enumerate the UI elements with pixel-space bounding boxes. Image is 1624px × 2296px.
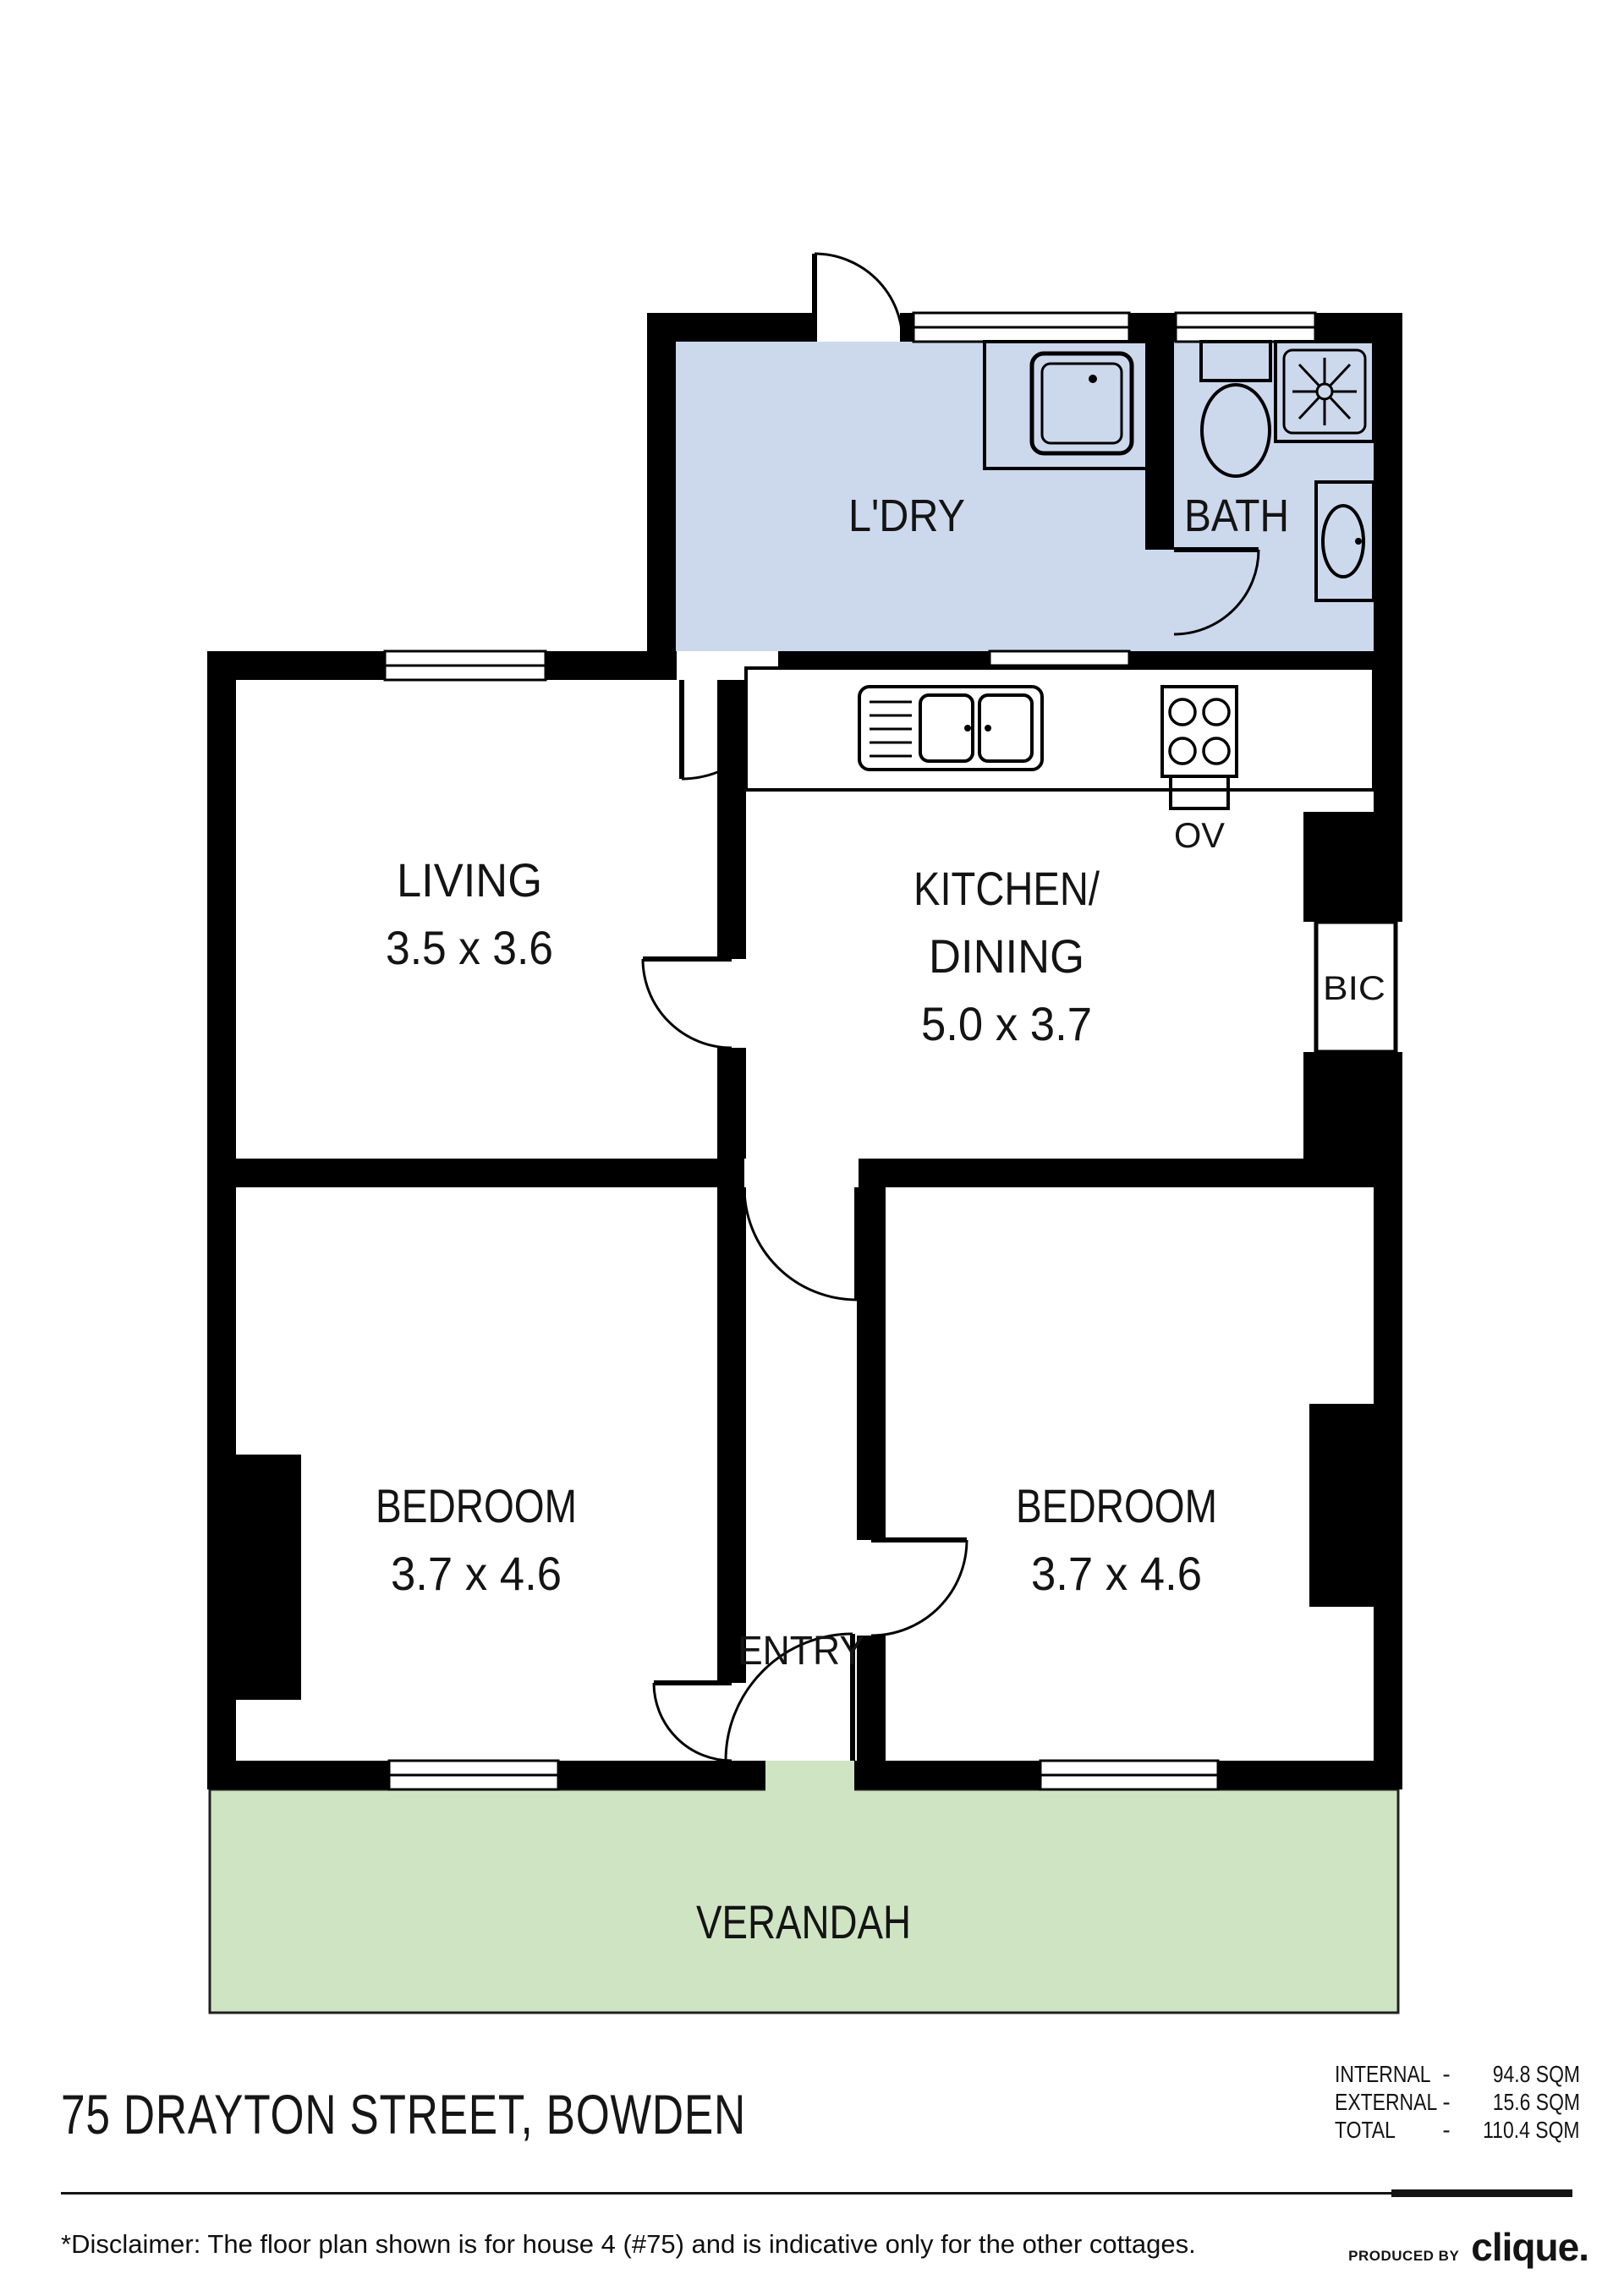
area-row-internal: INTERNAL - 94.8 SQM: [1335, 2060, 1580, 2088]
area-table: INTERNAL - 94.8 SQM EXTERNAL - 15.6 SQM …: [1335, 2060, 1580, 2144]
produced-by-label: PRODUCED BY: [1348, 2248, 1459, 2265]
room-label-entry: ENTRY: [738, 1629, 864, 1674]
room-label-laundry: L'DRY: [848, 490, 965, 541]
floor-plan: L'DRY BATH LIVING 3.5 x 3.6 KITCHEN/ DIN…: [0, 0, 1624, 2296]
room-label-living: LIVING: [397, 853, 542, 907]
producer-branding: PRODUCED BY clique.: [1348, 2224, 1588, 2270]
window-living: [385, 651, 546, 680]
room-dims-living: 3.5 x 3.6: [386, 921, 553, 974]
label-oven: OV: [1174, 815, 1225, 855]
room-label-bedroom-left: BEDROOM: [376, 1479, 577, 1532]
room-label-bath: BATH: [1184, 490, 1289, 541]
area-row-external: EXTERNAL - 15.6 SQM: [1335, 2088, 1580, 2116]
room-label-bedroom-right: BEDROOM: [1016, 1479, 1217, 1532]
door-hall-kitchen: [744, 1187, 857, 1300]
door-living: [643, 959, 732, 1048]
footer-divider: [61, 2192, 1394, 2195]
clique-logo: clique.: [1471, 2224, 1588, 2270]
footer-divider-accent: [1391, 2189, 1572, 2197]
window-bedroom-left: [389, 1761, 558, 1789]
page-title: 75 DRAYTON STREET, BOWDEN: [61, 2082, 939, 2146]
room-label-verandah: VERANDAH: [696, 1895, 911, 1948]
window-bedroom-right: [1040, 1761, 1218, 1789]
door-bedroom-left: [654, 1683, 732, 1761]
area-row-total: TOTAL - 110.4 SQM: [1335, 2116, 1580, 2144]
room-label-kitchen2: DINING: [929, 929, 1084, 983]
chimney-right: [1309, 1404, 1374, 1607]
chimney-left: [236, 1455, 301, 1700]
room-label-kitchen1: KITCHEN/: [913, 862, 1100, 915]
window-bath: [1176, 313, 1315, 342]
verandah-door-gap: [765, 1761, 854, 1791]
window-laundry: [913, 313, 1129, 342]
kitchen-bench: [746, 668, 1374, 790]
room-dims-bedroom-right: 3.7 x 4.6: [1031, 1547, 1202, 1600]
room-dims-kitchen: 5.0 x 3.7: [921, 997, 1092, 1050]
door-bedroom-right: [871, 1540, 967, 1636]
room-dims-bedroom-left: 3.7 x 4.6: [391, 1547, 562, 1600]
door-laundry-external: [815, 254, 903, 342]
label-bic: BIC: [1323, 970, 1385, 1007]
disclaimer-text: *Disclaimer: The floor plan shown is for…: [61, 2229, 1196, 2260]
